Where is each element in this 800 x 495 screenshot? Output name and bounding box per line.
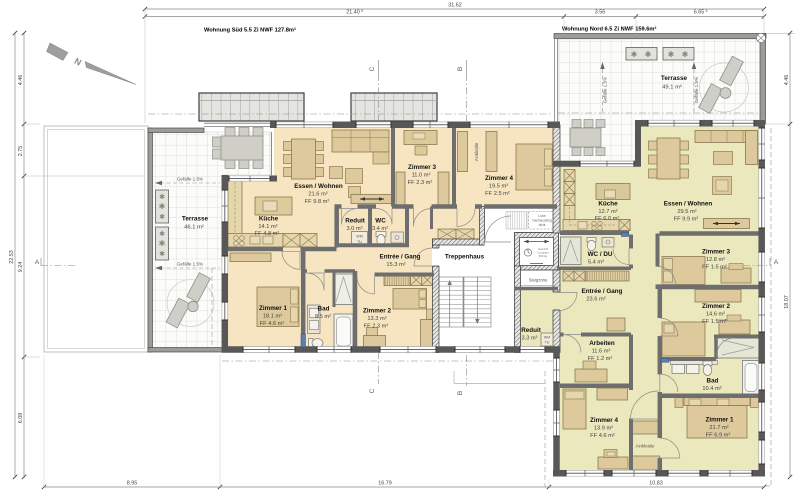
svg-text:5: 5 [706, 9, 708, 13]
svg-text:B: B [457, 67, 464, 71]
svg-text:9.24: 9.24 [18, 262, 24, 273]
svg-text:5: 5 [361, 9, 363, 13]
svg-text:FF 1.5 m²: FF 1.5 m² [702, 265, 727, 271]
svg-text:A: A [35, 259, 40, 266]
svg-text:Entrée / Gang: Entrée / Gang [380, 254, 421, 261]
svg-text:46.1 m²: 46.1 m² [184, 225, 204, 231]
svg-text:Entrée / Gang: Entrée / Gang [582, 288, 623, 295]
svg-text:18.07: 18.07 [784, 295, 790, 309]
svg-text:✱: ✱ [631, 50, 638, 59]
svg-text:8.95: 8.95 [127, 481, 138, 487]
svg-text:12.8 m²: 12.8 m² [706, 257, 725, 263]
svg-text:FF 4.6 m²: FF 4.6 m² [590, 433, 615, 439]
svg-text:Küche: Küche [259, 216, 279, 223]
svg-text:C: C [369, 66, 376, 71]
svg-text:Zimmer 4: Zimmer 4 [590, 417, 618, 424]
svg-text:16.79: 16.79 [378, 481, 392, 487]
svg-text:3.0 m²: 3.0 m² [346, 226, 362, 232]
svg-text:✱: ✱ [682, 50, 689, 59]
svg-text:Gefälle 1.5%: Gefälle 1.5% [177, 262, 203, 267]
svg-text:FF 9.9 m²: FF 9.9 m² [674, 217, 699, 223]
svg-text:Zimmer 2: Zimmer 2 [702, 303, 730, 310]
svg-text:Bad: Bad [707, 378, 719, 385]
svg-text:✱: ✱ [668, 50, 675, 59]
svg-text:Wohnung Süd 5.5 Zi NWF 127.8m²: Wohnung Süd 5.5 Zi NWF 127.8m² [204, 27, 296, 34]
svg-text:29.5 m²: 29.5 m² [677, 209, 696, 215]
svg-text:C: C [369, 388, 376, 393]
svg-text:✱: ✱ [159, 250, 165, 258]
svg-text:23.6 m²: 23.6 m² [586, 297, 605, 303]
svg-text:A: A [774, 259, 779, 266]
svg-text:12.7 m²: 12.7 m² [598, 209, 617, 215]
svg-text:19.5 m²: 19.5 m² [489, 184, 508, 190]
svg-text:WC / DU: WC / DU [588, 251, 613, 258]
svg-text:FF 4.6 m²: FF 4.6 m² [260, 321, 285, 327]
svg-text:Küche: Küche [598, 201, 618, 208]
svg-text:✱: ✱ [645, 50, 652, 59]
svg-text:Terrasse: Terrasse [661, 75, 688, 82]
svg-text:Luke: Luke [538, 214, 545, 218]
svg-text:Zimmer 1: Zimmer 1 [259, 305, 287, 312]
svg-text:Gefälle 1.5%: Gefälle 1.5% [177, 177, 203, 182]
svg-text:49.1 m²: 49.1 m² [662, 85, 682, 91]
svg-text:5.4 m²: 5.4 m² [588, 260, 604, 266]
svg-text:Terrasse: Terrasse [182, 216, 209, 223]
svg-text:4.46: 4.46 [784, 75, 790, 86]
svg-text:Zimmer 2: Zimmer 2 [363, 308, 391, 315]
svg-text:31.62: 31.62 [448, 3, 462, 9]
svg-text:6.65: 6.65 [694, 10, 705, 16]
svg-text:8.5 m²: 8.5 m² [315, 314, 331, 320]
svg-text:WC: WC [375, 218, 386, 225]
svg-text:✱: ✱ [159, 193, 165, 201]
svg-text:Dachausstieg: Dachausstieg [532, 219, 552, 223]
svg-text:3.56: 3.56 [595, 10, 606, 16]
svg-text:FF 2.5 m²: FF 2.5 m² [485, 191, 510, 197]
svg-text:Ankleide: Ankleide [474, 142, 480, 161]
svg-text:FF 4.8 m²: FF 4.8 m² [255, 231, 280, 237]
svg-text:TU: TU [545, 341, 550, 345]
svg-text:2.75: 2.75 [18, 146, 24, 157]
svg-text:WM: WM [356, 235, 362, 239]
svg-text:4.46: 4.46 [18, 75, 24, 86]
svg-text:Reduit: Reduit [521, 327, 541, 334]
svg-text:WM: WM [544, 336, 550, 340]
svg-text:10.83: 10.83 [649, 481, 663, 487]
svg-text:15.3 m²: 15.3 m² [386, 262, 405, 268]
svg-text:FF 6.0 m²: FF 6.0 m² [595, 216, 620, 222]
svg-text:Bad: Bad [318, 306, 330, 313]
svg-text:Essen / Wohnen: Essen / Wohnen [294, 183, 343, 190]
svg-text:FF 1.5 m²: FF 1.5 m² [702, 319, 727, 325]
svg-text:✱: ✱ [159, 202, 166, 211]
svg-text:3.4 m²: 3.4 m² [372, 226, 388, 232]
svg-text:Zimmer 3: Zimmer 3 [702, 249, 730, 256]
svg-text:11.0 m²: 11.0 m² [412, 173, 431, 179]
svg-text:✱: ✱ [159, 230, 165, 238]
svg-text:21.6 m²: 21.6 m² [308, 192, 327, 198]
svg-text:10.4 m²: 10.4 m² [702, 386, 721, 392]
svg-text:21.7 m²: 21.7 m² [709, 425, 728, 431]
svg-text:13.9 m²: 13.9 m² [594, 426, 613, 432]
svg-text:Ankleide: Ankleide [636, 444, 655, 450]
svg-text:6.08: 6.08 [18, 413, 24, 424]
svg-text:✱: ✱ [159, 239, 166, 248]
svg-text:FF 1.2 m²: FF 1.2 m² [588, 356, 613, 362]
svg-text:Treppenhaus: Treppenhaus [445, 254, 485, 261]
svg-text:13.3 m²: 13.3 m² [367, 316, 386, 322]
svg-text:Gefälle 1.5%: Gefälle 1.5% [694, 77, 699, 103]
svg-text:Essen / Wohnen: Essen / Wohnen [664, 201, 713, 208]
svg-text:Arbeiten: Arbeiten [589, 340, 615, 347]
svg-text:Reduit: Reduit [345, 218, 365, 225]
svg-text:14.6 m²: 14.6 m² [706, 312, 725, 318]
svg-text:dicht: dicht [539, 223, 546, 227]
svg-text:B: B [457, 391, 464, 395]
svg-text:FF 2.3 m²: FF 2.3 m² [364, 324, 389, 330]
svg-text:14.1 m²: 14.1 m² [258, 224, 277, 230]
svg-text:✱: ✱ [159, 213, 165, 221]
svg-text:FF 6.9 m²: FF 6.9 m² [706, 433, 731, 439]
svg-text:Wohnung Nord 6.5 Zi NWF 159.6m: Wohnung Nord 6.5 Zi NWF 159.6m² [562, 26, 656, 33]
svg-text:FF 2.3 m²: FF 2.3 m² [408, 180, 433, 186]
svg-text:21.40: 21.40 [346, 10, 360, 16]
svg-text:FF 9.8 m²: FF 9.8 m² [305, 199, 330, 205]
svg-text:Steigzone: Steigzone [529, 278, 548, 283]
svg-text:18.1 m²: 18.1 m² [263, 314, 282, 320]
svg-text:Zimmer 3: Zimmer 3 [408, 164, 436, 171]
svg-text:22.53: 22.53 [9, 250, 15, 264]
svg-text:11.6 m²: 11.6 m² [592, 349, 611, 355]
svg-text:Zimmer 1: Zimmer 1 [706, 417, 734, 424]
svg-text:Zimmer 4: Zimmer 4 [485, 175, 513, 182]
svg-text:Gefälle 1.5%: Gefälle 1.5% [603, 77, 608, 103]
svg-text:3.3 m²: 3.3 m² [521, 336, 537, 342]
svg-text:600 kg: 600 kg [539, 254, 548, 258]
